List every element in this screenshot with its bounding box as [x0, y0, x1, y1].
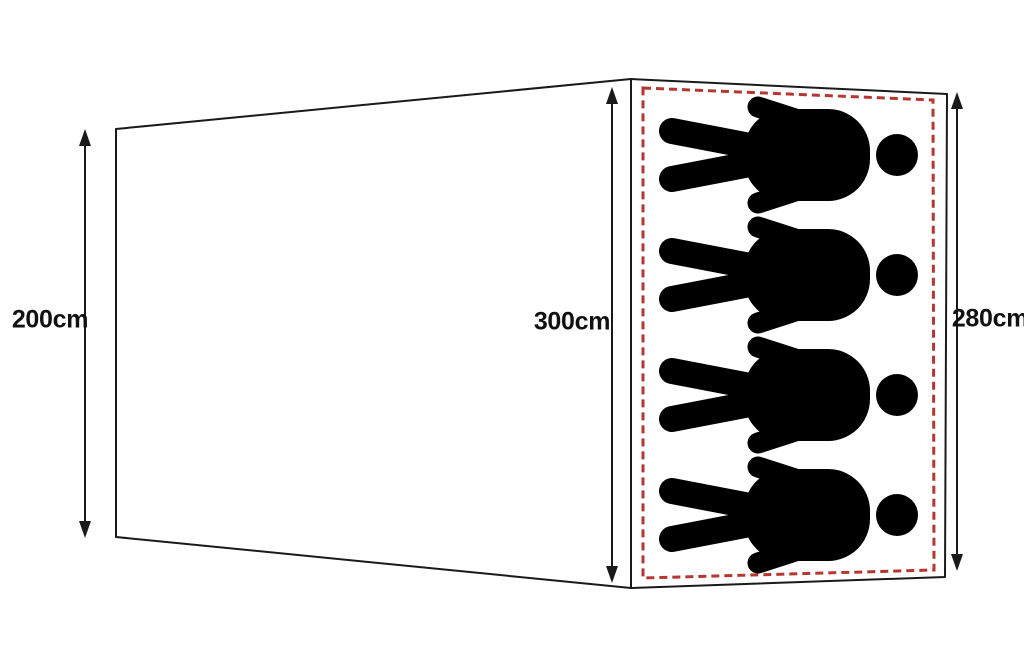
arrow-up-head	[79, 129, 91, 146]
arrow-up-head	[951, 92, 963, 109]
dimension-label-left: 200cm	[12, 306, 88, 335]
dimension-label-middle: 300cm	[534, 308, 610, 337]
diagram-canvas	[0, 0, 1024, 667]
tent-dimensions-diagram: 200cm 300cm 280cm	[0, 0, 1024, 667]
arrow-down-head	[951, 554, 963, 571]
arrow-down-head	[79, 521, 91, 538]
dimension-label-right: 280cm	[952, 305, 1024, 334]
